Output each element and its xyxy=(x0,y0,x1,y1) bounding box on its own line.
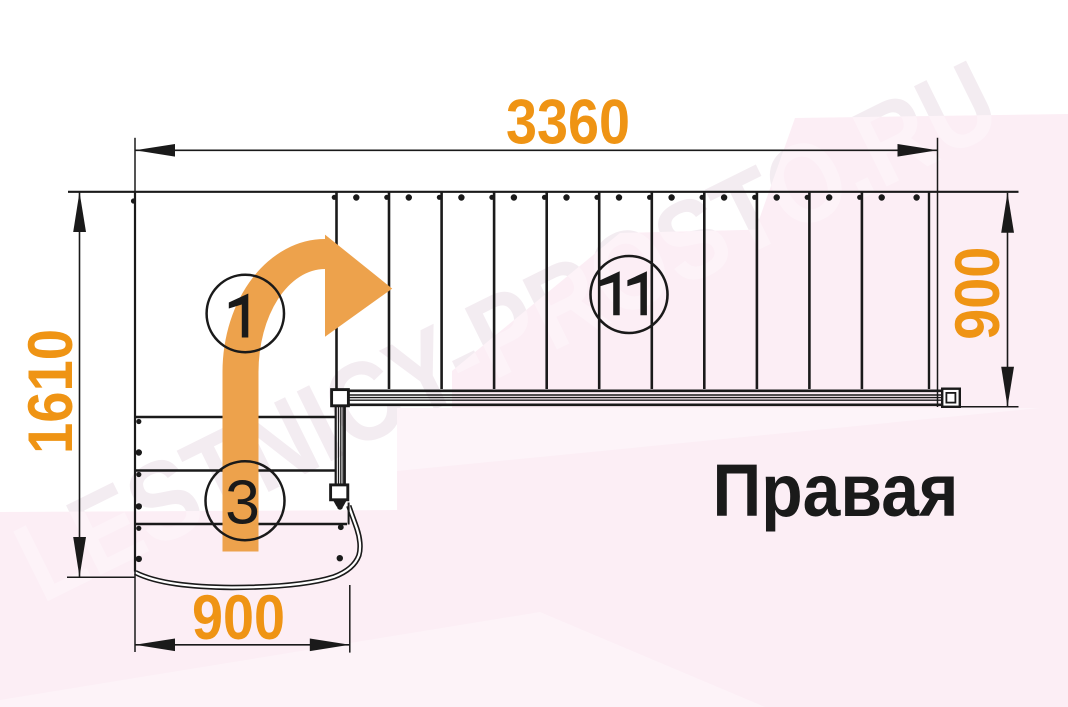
svg-text:3: 3 xyxy=(225,468,260,538)
svg-text:1610: 1610 xyxy=(16,329,86,454)
svg-text:900: 900 xyxy=(943,247,1013,340)
svg-text:Правая: Правая xyxy=(713,449,959,532)
svg-text:3360: 3360 xyxy=(506,88,630,158)
svg-text:900: 900 xyxy=(192,583,285,653)
